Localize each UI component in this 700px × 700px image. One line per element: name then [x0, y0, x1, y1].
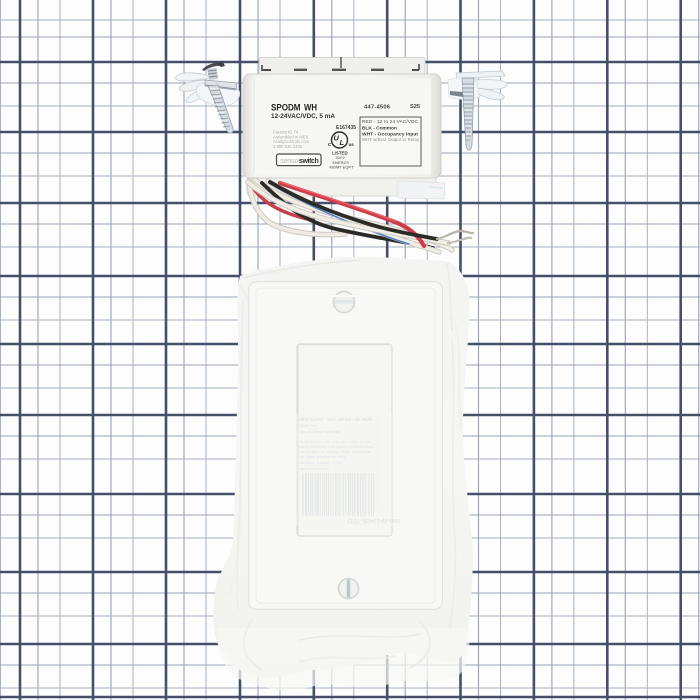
- svg-text:Smooth finish wallplate: Smooth finish wallplate: [299, 429, 341, 434]
- svg-text:447-4506: 447-4506: [364, 105, 391, 111]
- svg-text:L: L: [340, 138, 345, 147]
- svg-text:WHT w/BLU Output to Relay: WHT w/BLU Output to Relay: [362, 137, 420, 142]
- svg-text:SPODM: SPODM: [271, 103, 301, 113]
- svg-text:flat blade screwdriver only.: flat blade screwdriver only.: [299, 454, 346, 459]
- svg-text:12-24VAC/VDC, 5 mA: 12-24VAC/VDC, 5 mA: [271, 113, 335, 120]
- svg-text:www.leviton.com: www.leviton.com: [299, 466, 329, 471]
- svg-text:Garantia: Calidad 100%: Garantia: Calidad 100%: [299, 460, 342, 465]
- svg-text:1 800 535 2465: 1 800 535 2465: [273, 144, 303, 149]
- svg-text:RED - 12 to 24 VAC/VDC: RED - 12 to 24 VAC/VDC: [362, 119, 419, 124]
- svg-text:LISTED: LISTED: [332, 151, 348, 156]
- svg-text:mm-W-10405-TEO: mm-W-10405-TEO: [348, 517, 400, 524]
- svg-text:switch: switch: [299, 158, 319, 165]
- svg-text:WH: WH: [304, 103, 317, 113]
- svg-text:us: us: [349, 142, 355, 147]
- svg-text:c: c: [328, 142, 331, 148]
- svg-text:White Pol.: White Pol.: [299, 423, 317, 428]
- svg-text:MFR 52071 - WAL AP 1G - SCREW: MFR 52071 - WAL AP 1G - SCREW: [299, 417, 373, 422]
- svg-text:S25: S25: [410, 104, 420, 110]
- svg-text:E167435: E167435: [336, 125, 356, 131]
- svg-text:MGMT EQPT: MGMT EQPT: [330, 164, 355, 169]
- svg-text:BLK - Common: BLK - Common: [362, 125, 397, 131]
